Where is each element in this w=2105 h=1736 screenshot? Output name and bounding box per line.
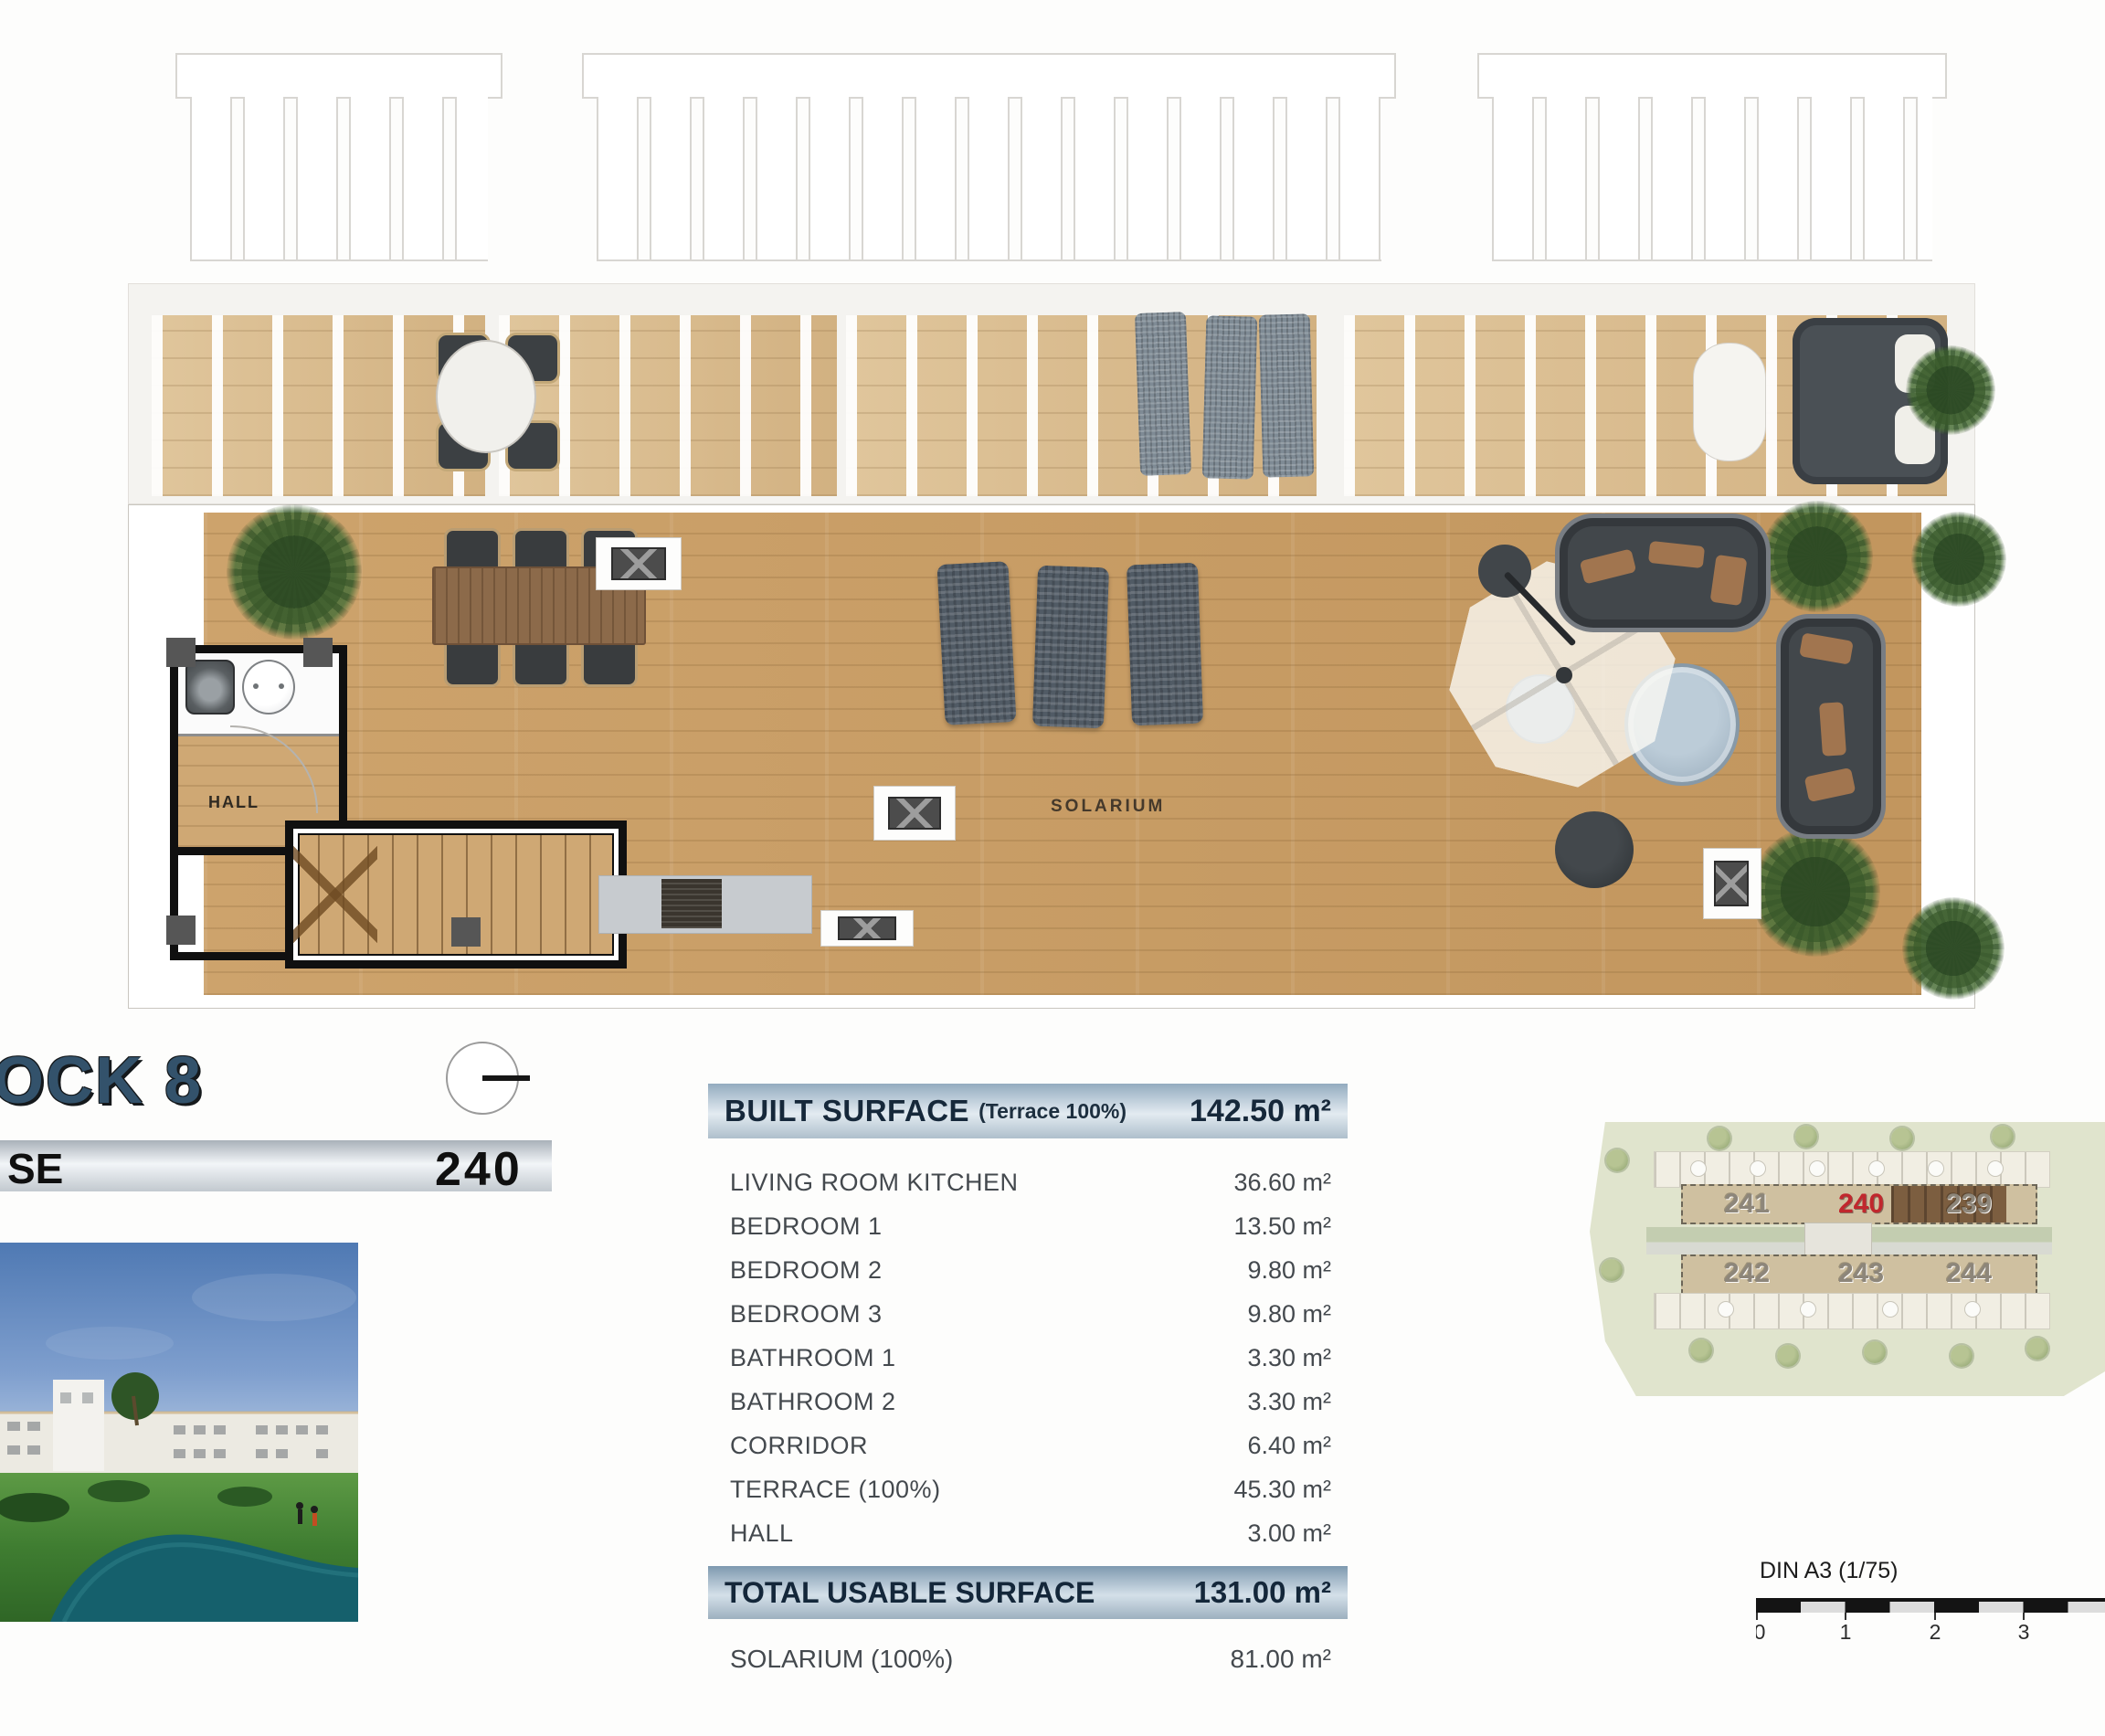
north-indicator-icon — [446, 1042, 519, 1115]
pergola-outline-center — [582, 53, 1396, 261]
stair-landing — [293, 829, 377, 960]
pouf — [1555, 811, 1634, 888]
tree-icon — [1864, 1341, 1886, 1363]
plant-icon — [1761, 501, 1873, 612]
tree-icon — [1690, 1339, 1712, 1361]
surface-table: BUILT SURFACE (Terrace 100%) 142.50 m² L… — [708, 1084, 1348, 1674]
tree-icon — [2026, 1338, 2048, 1360]
table-row: BATHROOM 1 3.30 m² — [730, 1336, 1344, 1380]
unit-244: 244 — [1946, 1258, 1992, 1289]
table-row: TERRACE (100%) 45.30 m² — [730, 1467, 1344, 1511]
terrace-table-icon — [1800, 1301, 1816, 1318]
floor-hatch-icon — [873, 786, 956, 841]
terrace-table-icon — [1882, 1301, 1899, 1318]
terrace-round-table — [436, 340, 536, 453]
tree-icon — [1951, 1345, 1973, 1367]
block-title: OCK 8 — [0, 1043, 203, 1118]
unit-242: 242 — [1724, 1258, 1770, 1289]
outdoor-sofa — [1555, 513, 1771, 632]
scale-label: DIN A3 (1/75) — [1760, 1558, 1898, 1584]
terrace-percent-label: (Terrace 100%) — [978, 1099, 1127, 1124]
table-row: BEDROOM 3 9.80 m² — [730, 1292, 1344, 1336]
floor-hatch-icon — [596, 537, 682, 590]
brochure-page: HALL SOLARIUM OCK 8 SE 240 — [0, 0, 2105, 1736]
plant-icon — [1906, 345, 1995, 435]
table-row: BATHROOM 2 3.30 m² — [730, 1380, 1344, 1424]
built-surface-value: 142.50 m² — [1190, 1094, 1331, 1129]
tree-icon — [1891, 1127, 1913, 1149]
scale-bar: DIN A3 (1/75) 0 1 2 3 — [1756, 1558, 2105, 1649]
wall-post — [303, 638, 333, 667]
terraces-band — [1654, 1293, 2050, 1329]
sun-lounger — [1127, 563, 1203, 726]
unit-243: 243 — [1838, 1258, 1884, 1289]
surface-rows: LIVING ROOM KITCHEN 36.60 m² BEDROOM 1 1… — [708, 1138, 1348, 1555]
terrace-table-icon — [1964, 1301, 1981, 1318]
table-row: HALL 3.00 m² — [730, 1511, 1344, 1555]
plant-icon — [1911, 512, 2006, 607]
table-row: LIVING ROOM KITCHEN 36.60 m² — [730, 1160, 1344, 1204]
floor-hatch-icon — [820, 910, 914, 947]
pergola-beam — [582, 53, 1396, 99]
plant-icon — [1751, 827, 1880, 957]
terrace-table-icon — [1868, 1160, 1885, 1177]
sun-lounger — [936, 561, 1016, 725]
scale-tick-1: 1 — [1840, 1620, 1852, 1645]
scale-segments — [1756, 1602, 2105, 1613]
terrace-table-icon — [1750, 1160, 1766, 1177]
unit-type-label: SE — [7, 1144, 63, 1193]
wall-post — [166, 916, 196, 945]
tree-icon — [1606, 1149, 1628, 1171]
tree-icon — [1708, 1127, 1730, 1149]
scale-tick-0: 0 — [1756, 1620, 1765, 1645]
solarium-label: SOLARIUM — [1051, 797, 1165, 817]
lounger-mat — [1259, 313, 1315, 477]
total-usable-surface-bar: TOTAL USABLE SURFACE 131.00 m² — [708, 1566, 1348, 1619]
pergola-outline-right — [1477, 53, 1947, 261]
table-row: CORRIDOR 6.40 m² — [730, 1424, 1344, 1467]
scale-tick-3: 3 — [2018, 1620, 2030, 1645]
terrace-daybed — [1693, 343, 1766, 461]
project-photo — [0, 1243, 358, 1622]
outdoor-sofa — [1776, 614, 1886, 839]
wall-post — [166, 638, 196, 667]
plant-icon — [227, 504, 362, 640]
tree-icon — [1795, 1126, 1817, 1148]
sink-icon — [242, 660, 295, 715]
table-row: BEDROOM 2 9.80 m² — [730, 1248, 1344, 1292]
table-row: BEDROOM 1 13.50 m² — [730, 1204, 1344, 1248]
terrace-table-icon — [1690, 1160, 1707, 1177]
terrace-table-icon — [1718, 1301, 1734, 1318]
lounger-mat — [1202, 315, 1258, 479]
tree-icon — [1601, 1259, 1623, 1281]
solarium-surface-row: SOLARIUM (100%) 81.00 m² — [708, 1619, 1348, 1674]
terrace-table-icon — [1809, 1160, 1825, 1177]
site-key-plan: 241 240 239 242 243 244 — [1590, 1122, 2105, 1396]
pergola-beam — [1477, 53, 1947, 99]
hall-label: HALL — [208, 793, 259, 812]
built-surface-label: BUILT SURFACE — [725, 1094, 969, 1128]
built-surface-header: BUILT SURFACE (Terrace 100%) 142.50 m² — [708, 1084, 1348, 1138]
doormat — [661, 879, 722, 928]
terrace-table-icon — [1987, 1160, 2004, 1177]
cooktop-icon — [185, 660, 235, 715]
pergola-panels — [597, 97, 1381, 261]
pergola-panels — [190, 97, 488, 261]
unit-241: 241 — [1724, 1189, 1770, 1220]
scale-tick-2: 2 — [1930, 1620, 1941, 1645]
plant-icon — [1902, 897, 2005, 1000]
wall-post — [451, 917, 481, 947]
terrace-table-icon — [1928, 1160, 1944, 1177]
tree-icon — [1992, 1126, 2014, 1148]
unit-240: 240 — [1838, 1189, 1884, 1220]
sun-lounger — [1032, 566, 1109, 729]
tree-icon — [1777, 1345, 1799, 1367]
unit-number: 240 — [435, 1142, 523, 1197]
lounger-mat — [1135, 312, 1191, 476]
pergola-panels — [1492, 97, 1932, 261]
floor-hatch-icon — [1703, 848, 1761, 919]
unit-239: 239 — [1946, 1189, 1992, 1220]
pergola-beam — [175, 53, 502, 99]
pergola-outline-left — [175, 53, 502, 261]
parasol-hub — [1556, 667, 1572, 683]
